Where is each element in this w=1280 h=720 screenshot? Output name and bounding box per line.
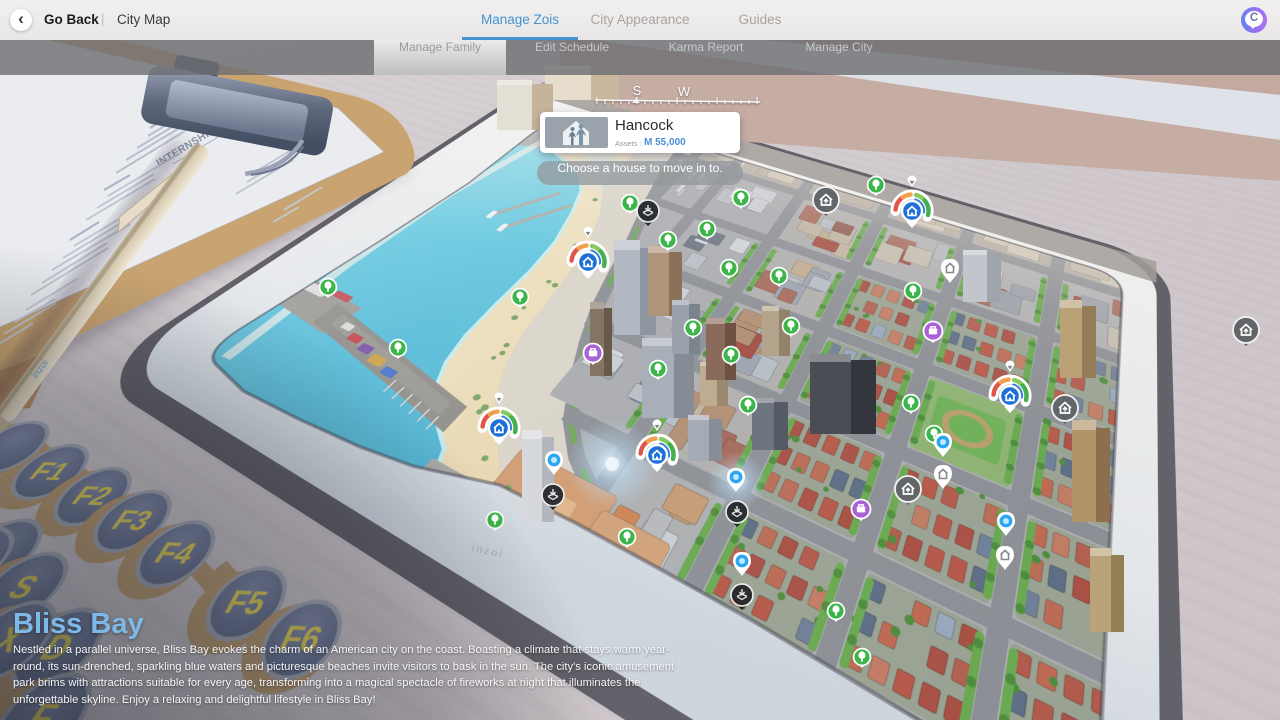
svg-text:S: S xyxy=(633,83,642,98)
svg-text:inzoi: inzoi xyxy=(470,542,504,561)
svg-text:W: W xyxy=(678,84,691,99)
